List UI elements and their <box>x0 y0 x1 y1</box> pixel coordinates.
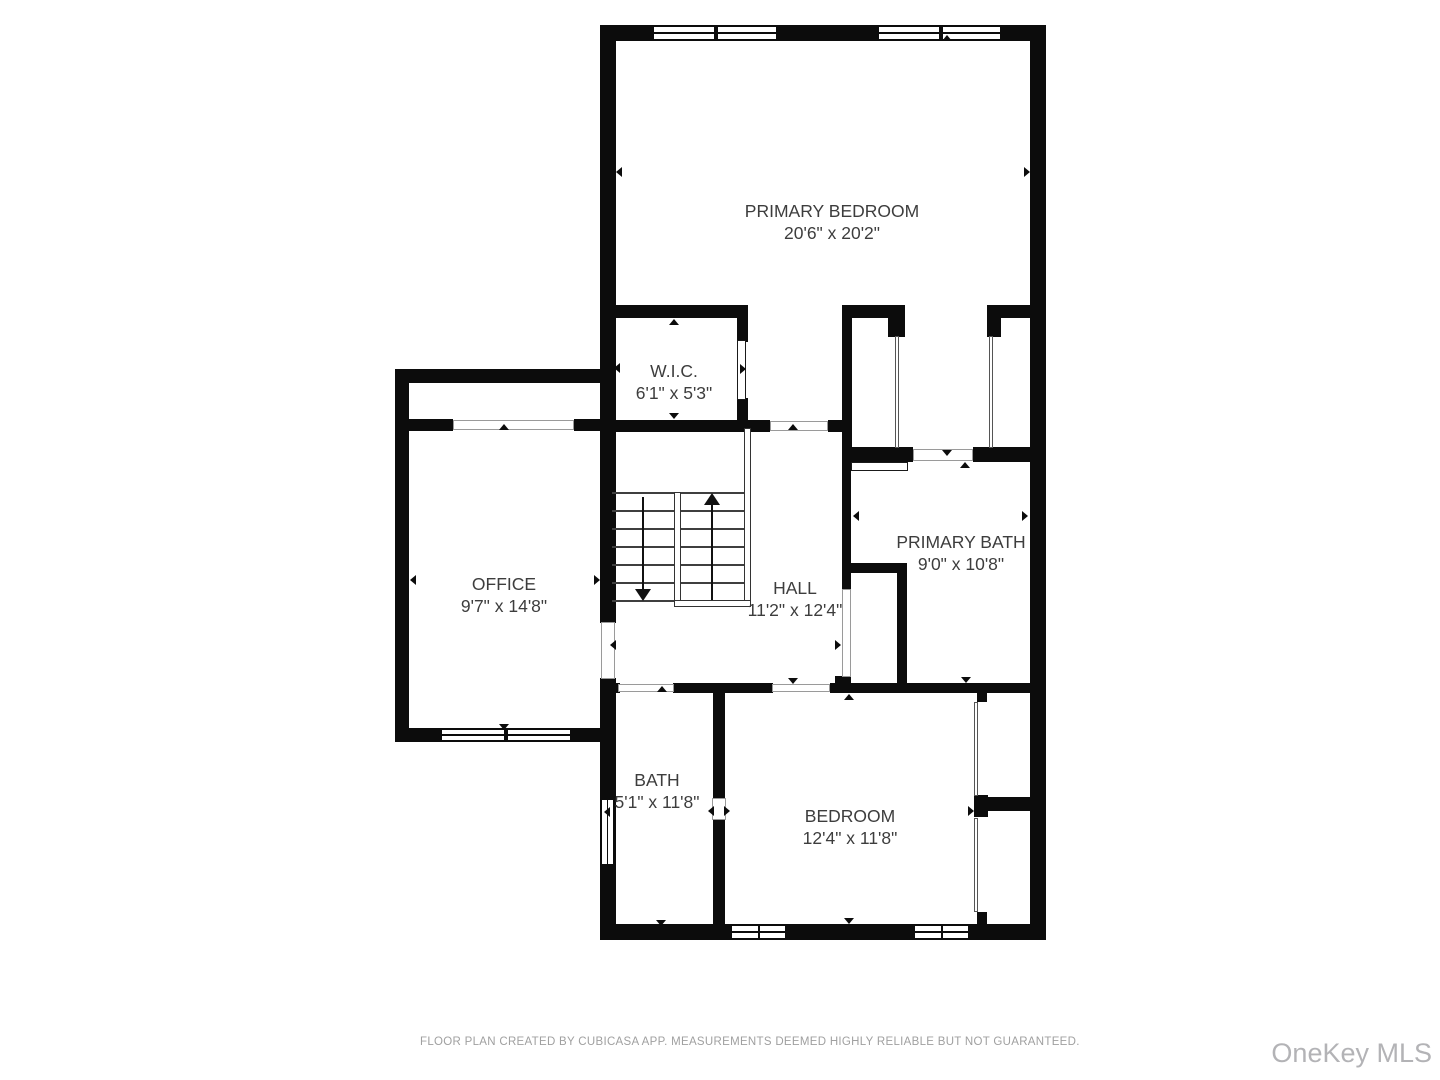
sliding-door <box>895 336 899 448</box>
wall <box>713 692 725 798</box>
room-label-wic: W.I.C.6'1" x 5'3" <box>636 360 713 404</box>
room-dims: 11'2" x 12'4" <box>748 599 843 621</box>
window <box>716 25 778 41</box>
wall <box>737 305 748 342</box>
door-opening <box>601 622 615 679</box>
wall <box>987 305 1046 318</box>
stair-tread <box>612 492 674 494</box>
dimension-marker <box>499 724 509 730</box>
dimension-marker <box>610 640 616 650</box>
window <box>913 924 970 940</box>
room-label-primary-bath: PRIMARY BATH9'0" x 10'8" <box>896 531 1025 575</box>
wall <box>600 683 620 693</box>
room-dims: 6'1" x 5'3" <box>636 382 713 404</box>
room-dims: 12'4" x 11'8" <box>803 827 898 849</box>
window <box>506 728 572 742</box>
footer-text: FLOOR PLAN CREATED BY CUBICASA APP. MEAS… <box>420 1036 1080 1048</box>
dimension-marker <box>968 806 974 816</box>
dimension-marker <box>708 806 714 816</box>
room-name: PRIMARY BEDROOM <box>745 200 919 222</box>
sliding-door <box>974 818 978 912</box>
room-label-bedroom: BEDROOM12'4" x 11'8" <box>803 805 898 849</box>
wall <box>600 25 616 623</box>
dimension-marker <box>604 807 610 817</box>
dimension-marker <box>844 694 854 700</box>
dimension-marker <box>614 363 620 373</box>
dimension-marker <box>960 462 970 468</box>
dimension-marker <box>594 575 600 585</box>
wall <box>395 369 616 383</box>
dimension-marker <box>669 413 679 419</box>
wall <box>977 912 987 924</box>
wall <box>843 447 913 462</box>
room-name: W.I.C. <box>636 360 713 382</box>
room-label-hall: HALL11'2" x 12'4" <box>748 577 843 621</box>
stair-arrow-down-icon <box>635 589 651 601</box>
dimension-marker <box>835 640 841 650</box>
dimension-marker <box>657 686 667 692</box>
dimension-marker <box>1022 511 1028 521</box>
wall <box>395 369 409 742</box>
room-label-primary-bedroom: PRIMARY BEDROOM20'6" x 20'2" <box>745 200 919 244</box>
wall <box>973 447 1046 462</box>
dimension-marker <box>942 450 952 456</box>
wall <box>888 318 905 337</box>
watermark: OneKey MLS <box>1271 1038 1432 1069</box>
dimension-marker <box>669 319 679 325</box>
floorplan-canvas: FLOOR PLAN CREATED BY CUBICASA APP. MEAS… <box>0 0 1440 1080</box>
dimension-marker <box>788 424 798 430</box>
wall <box>830 683 1046 693</box>
dimension-marker <box>616 167 622 177</box>
wall <box>600 305 748 318</box>
room-dims: 5'1" x 11'8" <box>615 791 700 813</box>
door-opening <box>453 420 574 430</box>
door-opening <box>842 589 851 677</box>
room-name: BATH <box>615 769 700 791</box>
wall <box>713 820 725 924</box>
door-leaf <box>851 462 908 471</box>
dimension-marker <box>499 424 509 430</box>
wall <box>600 924 1046 940</box>
door-opening <box>772 684 830 692</box>
stair-arrow-up-icon <box>704 493 720 505</box>
room-dims: 20'6" x 20'2" <box>745 222 919 244</box>
door-opening <box>770 421 828 431</box>
stair-railing <box>674 600 751 607</box>
dimension-marker <box>740 364 746 374</box>
dimension-marker <box>942 35 952 41</box>
dimension-marker <box>961 677 971 683</box>
wall <box>897 563 907 693</box>
dimension-marker <box>853 511 859 521</box>
dimension-marker <box>1024 167 1030 177</box>
dimension-marker <box>656 920 666 926</box>
room-name: PRIMARY BATH <box>896 531 1025 553</box>
room-label-office: OFFICE9'7" x 14'8" <box>461 573 547 617</box>
sliding-door <box>974 702 978 796</box>
wall <box>842 305 852 462</box>
sliding-door <box>989 336 993 448</box>
window <box>730 924 787 940</box>
dimension-marker <box>788 678 798 684</box>
wall <box>409 419 453 431</box>
stair-direction-line <box>711 505 713 600</box>
room-label-bath: BATH5'1" x 11'8" <box>615 769 700 813</box>
room-dims: 9'7" x 14'8" <box>461 595 547 617</box>
room-name: BEDROOM <box>803 805 898 827</box>
wall <box>977 797 1046 811</box>
wall <box>828 420 852 432</box>
room-dims: 9'0" x 10'8" <box>896 553 1025 575</box>
window <box>440 728 506 742</box>
window <box>877 25 941 41</box>
window <box>652 25 716 41</box>
dimension-marker <box>724 806 730 816</box>
dimension-marker <box>410 575 416 585</box>
wall <box>987 318 1001 337</box>
dimension-marker <box>844 918 854 924</box>
stair-railing <box>674 492 681 607</box>
wall <box>843 305 905 318</box>
wall <box>977 692 987 702</box>
room-name: HALL <box>748 577 843 599</box>
room-name: OFFICE <box>461 573 547 595</box>
stair-direction-line <box>642 497 644 589</box>
